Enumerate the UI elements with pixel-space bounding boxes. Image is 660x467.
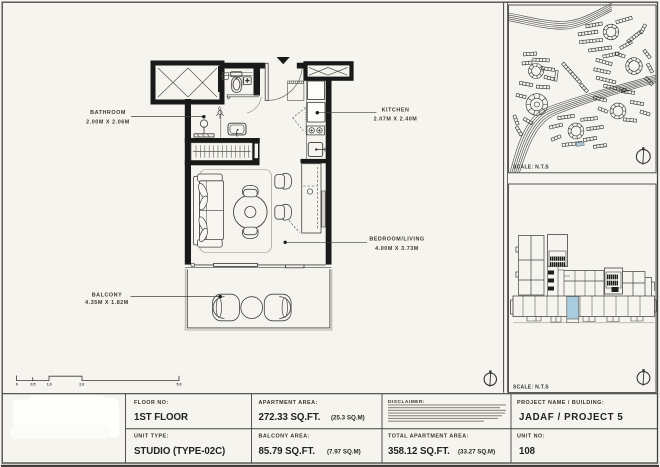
svg-text:UNIT NO:: UNIT NO:	[517, 434, 545, 440]
svg-text:1ST FLOOR: 1ST FLOOR	[134, 412, 188, 423]
svg-text:UNIT TYPE:: UNIT TYPE:	[134, 434, 169, 440]
svg-text:PROJECT NAME / BUILDING:: PROJECT NAME / BUILDING:	[517, 400, 604, 406]
svg-text:(25.3 SQ.M): (25.3 SQ.M)	[331, 415, 365, 422]
svg-text:STUDIO (TYPE-02C): STUDIO (TYPE-02C)	[134, 446, 225, 457]
svg-text:DISCLAIMER:: DISCLAIMER:	[388, 399, 425, 405]
svg-text:0.5: 0.5	[31, 382, 36, 386]
svg-text:5.0: 5.0	[177, 382, 182, 386]
svg-text:SCALE: N.T.S: SCALE: N.T.S	[513, 385, 549, 391]
svg-text:4.35M X 1.82M: 4.35M X 1.82M	[85, 300, 129, 306]
svg-text:(7.97 SQ.M): (7.97 SQ.M)	[327, 448, 361, 455]
svg-text:272.33 SQ.FT.: 272.33 SQ.FT.	[259, 412, 321, 423]
svg-text:SCALE: N.T.S: SCALE: N.T.S	[513, 165, 549, 171]
svg-text:358.12 SQ.FT.: 358.12 SQ.FT.	[388, 446, 450, 457]
svg-text:4.00M X 3.73M: 4.00M X 3.73M	[375, 246, 419, 252]
svg-text:APARTMENT AREA:: APARTMENT AREA:	[259, 400, 318, 406]
svg-text:JADAF / PROJECT 5: JADAF / PROJECT 5	[519, 412, 623, 423]
svg-text:108: 108	[519, 446, 536, 457]
svg-text:BALCONY: BALCONY	[92, 292, 123, 298]
svg-text:1.0: 1.0	[47, 382, 52, 386]
svg-text:(33.27 SQ.M): (33.27 SQ.M)	[458, 448, 495, 455]
svg-text:0: 0	[16, 382, 18, 386]
svg-text:FLOOR NO:: FLOOR NO:	[134, 400, 169, 406]
svg-text:BATHROOM: BATHROOM	[90, 110, 126, 116]
svg-text:2.00M X 2.06M: 2.00M X 2.06M	[86, 119, 130, 125]
svg-text:2.0: 2.0	[79, 382, 84, 386]
svg-text:BEDROOM/LIVING: BEDROOM/LIVING	[369, 237, 424, 243]
svg-text:BALCONY AREA:: BALCONY AREA:	[259, 434, 310, 440]
svg-text:KITCHEN: KITCHEN	[382, 107, 410, 113]
svg-text:TOTAL APARTMENT AREA:: TOTAL APARTMENT AREA:	[388, 434, 469, 440]
svg-text:2.07M X 2.40M: 2.07M X 2.40M	[374, 116, 418, 122]
svg-text:85.79 SQ.FT.: 85.79 SQ.FT.	[259, 446, 316, 457]
